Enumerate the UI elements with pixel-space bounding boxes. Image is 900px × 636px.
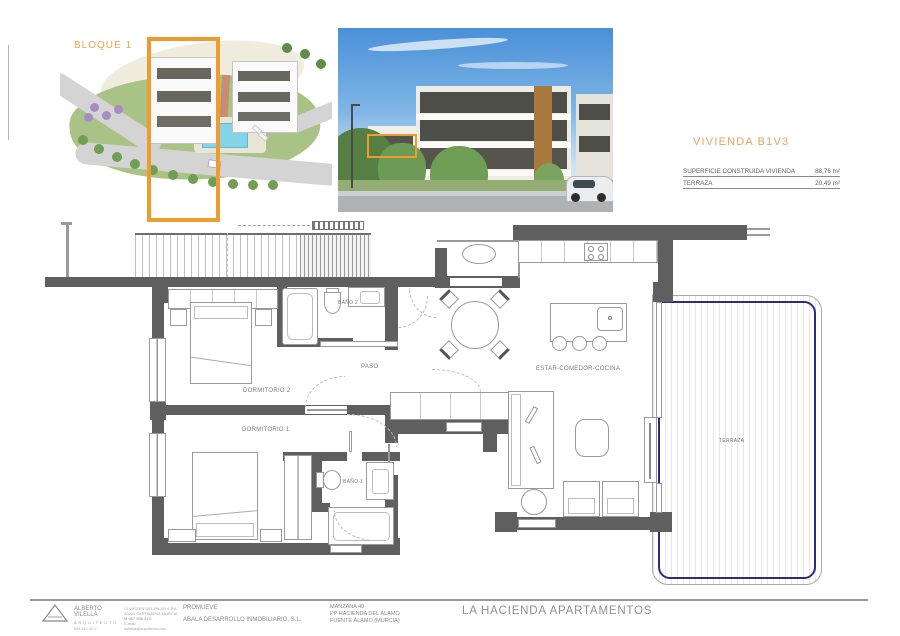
wall [483, 420, 497, 452]
wall-line [61, 222, 72, 225]
block-highlight-box [147, 37, 220, 222]
car-window [573, 180, 595, 188]
area-value: 88,76 m² [815, 168, 840, 175]
sofa-back [511, 394, 521, 486]
area-label: TERRAZA [683, 180, 712, 187]
tv-unit [644, 417, 657, 483]
sofa [508, 391, 554, 489]
window-band [579, 104, 610, 120]
wardrobe [284, 455, 312, 540]
stool [572, 336, 587, 351]
location-block: MANZANA 49 PP HACIENDA DEL ÁLAMO FUENTE … [330, 604, 400, 625]
wall [45, 277, 155, 287]
room-label-dormitorio-1: DORMITORIO 1 [242, 427, 290, 433]
block-label: BLOQUE 1 [74, 40, 132, 51]
wall-line [66, 222, 69, 277]
architect-reg: 696 512 42 V [74, 627, 122, 631]
tree [94, 144, 104, 154]
room-label-bano-1: BAÑO 1 [343, 479, 363, 485]
tree [316, 59, 326, 69]
burner [598, 254, 604, 260]
room-label-bano-2: BAÑO 2 [338, 300, 358, 306]
wall [155, 405, 398, 415]
window-band [238, 92, 290, 102]
armchair [602, 481, 639, 517]
bathtub-inner [287, 293, 313, 340]
pillow [529, 446, 541, 464]
tree [282, 43, 292, 53]
contact-line: E-mail: avilella@arquitecto.com [124, 621, 179, 631]
chair [490, 340, 510, 360]
closet [390, 392, 512, 420]
tree [248, 180, 258, 190]
pergola-centerline [227, 233, 228, 277]
area-row: SUPERFICIE CONSTRUIDA VIVIENDA 88,76 m² [683, 166, 840, 177]
project-title: LA HACIENDA APARTAMENTOS [462, 605, 652, 617]
architect-logo-icon [42, 604, 68, 622]
cooktop [584, 243, 608, 261]
pillow [525, 406, 538, 424]
tree [78, 135, 88, 145]
cushion [168, 529, 196, 542]
architect-name: ALBERTO VILELLA [74, 606, 122, 618]
stool [552, 336, 567, 351]
terrace-deck: TERRAZA [652, 295, 822, 585]
pillows [196, 523, 254, 537]
wall-hatch [312, 221, 364, 230]
chair [439, 289, 459, 309]
bathtub [282, 288, 318, 345]
wheel [571, 193, 580, 202]
burner [588, 246, 594, 252]
tv [649, 423, 651, 479]
sliding-glass-door [656, 302, 662, 418]
entrance-door [446, 422, 482, 432]
promoter-block: PROMUEVE ABALA DESARROLLO INMOBILIARIO, … [183, 605, 301, 623]
window-band [238, 71, 290, 81]
room-label-dormitorio-2: DORMITORIO 2 [243, 388, 291, 394]
cushion [260, 529, 282, 542]
window [149, 433, 166, 497]
coffee-table [575, 419, 609, 457]
toilet [323, 470, 341, 490]
roof-dashed-line [238, 225, 310, 226]
door-swing-arc [305, 376, 345, 407]
pillows [194, 306, 248, 319]
area-row: TERRAZA 20,49 m² [683, 177, 840, 189]
wall-line [747, 234, 770, 236]
window-band [238, 112, 290, 121]
dining-table [451, 301, 499, 349]
room-label-terraza: TERRAZA [719, 438, 744, 444]
door-opening [450, 278, 502, 286]
lamp-arm [351, 104, 360, 106]
wall [650, 512, 672, 532]
location-line: PP HACIENDA DEL ÁLAMO [330, 611, 400, 618]
window [330, 545, 362, 553]
area-value: 20,49 m² [815, 180, 840, 187]
window [149, 338, 166, 402]
shrub [90, 103, 99, 112]
wall [673, 225, 747, 240]
street-render-photo [338, 28, 613, 212]
bed [192, 452, 258, 540]
pergola-louvers-dense [300, 235, 371, 277]
vanity [366, 462, 394, 500]
wall [495, 512, 517, 532]
armchair [563, 481, 600, 517]
wall [362, 452, 400, 461]
architect-title: ARQUITECTO [74, 620, 122, 625]
door-swing-arc [432, 369, 481, 392]
wall [152, 287, 164, 555]
shrub [114, 105, 123, 114]
tree [112, 152, 122, 162]
utility-sink [462, 244, 496, 264]
nightstand [170, 309, 187, 326]
stool [592, 336, 607, 351]
burner [588, 254, 594, 260]
wall [155, 277, 437, 287]
shrub [84, 113, 93, 122]
bed-fold [191, 357, 252, 366]
wall-line [437, 240, 520, 242]
unit-info: VIVIENDA B1V3 SUPERFICIE CONSTRUIDA VIVI… [683, 136, 840, 189]
console-shelf [320, 341, 398, 347]
side-table [521, 489, 547, 515]
wall [513, 225, 663, 240]
sliding-glass-door [656, 483, 662, 513]
sink [372, 469, 389, 494]
room-label-estar: ESTAR-COMEDOR-COCINA [536, 366, 620, 372]
door-leaf [307, 409, 347, 411]
building-block-2 [232, 61, 298, 133]
unit-highlight-box [367, 134, 417, 158]
area-label: SUPERFICIE CONSTRUIDA VIVIENDA [683, 168, 795, 175]
window-band [579, 136, 610, 152]
wall [653, 282, 673, 302]
burner [598, 246, 604, 252]
unit-title: VIVIENDA B1V3 [693, 136, 840, 148]
cloud [458, 62, 568, 69]
tree [268, 180, 278, 190]
faucet [608, 316, 612, 320]
architect-block: ALBERTO VILELLA ARQUITECTO 696 512 42 V [74, 606, 122, 631]
bed [190, 302, 252, 384]
bed-fold [193, 510, 258, 517]
tree [130, 159, 140, 169]
wall [658, 225, 673, 285]
window [518, 519, 556, 528]
chair [439, 340, 459, 360]
chair [490, 289, 510, 309]
shrub [102, 111, 111, 120]
tree [228, 179, 238, 189]
promoter-label: PROMUEVE [183, 605, 301, 611]
tree [300, 49, 310, 59]
wall-line [747, 228, 770, 230]
lamp-post [351, 104, 353, 188]
promoter-name: ABALA DESARROLLO INMOBILIARIO, S.L. [183, 617, 301, 623]
sink [360, 291, 380, 304]
car [566, 176, 613, 202]
title-block-divider [30, 599, 868, 601]
nightstand [255, 309, 272, 326]
location-line: MANZANA 49 [330, 604, 400, 611]
page-border [8, 45, 9, 140]
location-line: FUENTE ÁLAMO (MURCIA) [330, 618, 400, 625]
architect-contact: C/ VIRGEN DEL PILAR 4 3ºA 30201 CARTAGEN… [124, 606, 179, 631]
wall [152, 538, 168, 555]
wheel [597, 193, 606, 202]
armchair-seat [568, 498, 595, 514]
room-label-paso: PASO [361, 364, 378, 370]
plan-sheet: BLOQUE 1 [0, 0, 900, 636]
armchair-seat [607, 498, 634, 514]
